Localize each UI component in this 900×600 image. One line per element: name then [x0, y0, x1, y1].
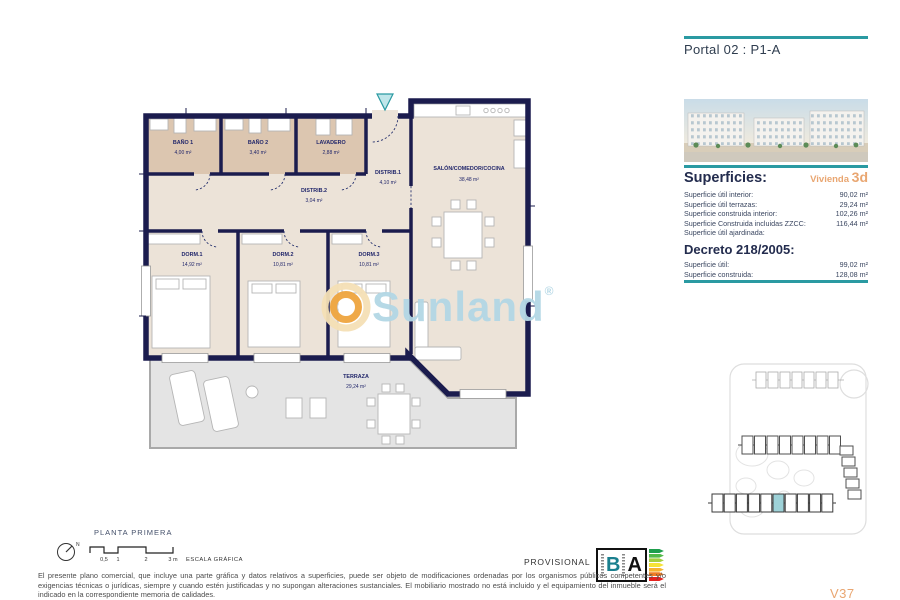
building-render-image — [684, 99, 868, 162]
version-label: V37 — [830, 586, 855, 600]
scale-caption: ESCALA GRÁFICA — [186, 556, 243, 563]
area-banyo1: 4,00 m² — [175, 150, 192, 156]
row-label: Superficie útil terrazas: — [684, 200, 757, 210]
vivienda-code: 3d — [852, 169, 868, 185]
bed-dorm1 — [152, 276, 210, 348]
entrance-arrow-icon — [377, 94, 393, 110]
row-label: Superficie útil interior: — [684, 190, 753, 200]
site-stack-right — [840, 446, 861, 499]
area-dorm3: 10,81 m² — [359, 262, 379, 268]
divider — [684, 280, 868, 283]
north-label: N — [76, 542, 80, 548]
scale-tick: 2 — [144, 557, 147, 563]
row-value: 116,44 m² — [836, 219, 868, 229]
scale-tick: 0,5 — [100, 557, 108, 563]
scale-tick: 1 — [116, 557, 119, 563]
portal-title: Portal 02 : P1-A — [684, 42, 781, 57]
divider — [684, 165, 868, 168]
area-dorm2: 10,81 m² — [273, 262, 293, 268]
superficies-table: Superficie útil interior:90,02 m² Superf… — [684, 190, 868, 238]
provisional-label: PROVISIONAL — [524, 557, 590, 567]
label-dorm2: DORM.2 — [273, 252, 294, 258]
row-value: 102,26 m² — [836, 209, 868, 219]
highlighted-unit — [773, 494, 784, 512]
entry-opening — [372, 110, 398, 121]
row-value: 29,24 m² — [840, 200, 868, 210]
info-sidebar: Portal 02 : P1-A — [684, 0, 868, 600]
decreto-table: Superficie útil:99,02 m² Superficie cons… — [684, 260, 868, 279]
row-label: Superficie útil: — [684, 260, 729, 270]
site-row-upper — [752, 372, 844, 388]
row-label: Superficie construida interior: — [684, 209, 777, 219]
floor-plan: BAÑO 1 4,00 m² BAÑO 2 3,40 m² LAVADERO 2… — [36, 86, 666, 458]
plan-title: PLANTA PRIMERA — [94, 528, 172, 537]
wardrobe — [332, 234, 362, 244]
label-banyo1: BAÑO 1 — [173, 139, 193, 146]
bed-dorm3 — [338, 281, 390, 347]
floor-plan-sheet: BAÑO 1 4,00 m² BAÑO 2 3,40 m² LAVADERO 2… — [0, 0, 900, 600]
row-value: 128,08 m² — [836, 270, 868, 280]
label-salon: SALÓN/COMEDOR/COCINA — [433, 164, 504, 172]
label-terraza: TERRAZA — [343, 374, 369, 380]
scale-ruler — [90, 547, 173, 553]
superficie-row: Superficie útil:99,02 m² — [684, 260, 868, 270]
row-value: 99,02 m² — [840, 260, 868, 270]
area-terraza: 29,24 m² — [346, 384, 366, 390]
superficie-row: Superficie útil ajardinada: — [684, 228, 868, 238]
bed-dorm2 — [248, 281, 300, 347]
legal-disclaimer: El presente plano comercial, que incluye… — [38, 571, 666, 600]
label-lavadero: LAVADERO — [316, 140, 345, 146]
superficie-row: Superficie Construida incluidas ZZCC:116… — [684, 219, 868, 229]
area-dorm1: 14,92 m² — [182, 262, 202, 268]
superficies-heading: Superficies: — [684, 170, 767, 186]
superficie-row: Superficie útil terrazas:29,24 m² — [684, 200, 868, 210]
area-lavadero: 2,88 m² — [323, 150, 340, 156]
row-value: 90,02 m² — [840, 190, 868, 200]
decreto-heading: Decreto 218/2005: — [684, 242, 795, 257]
site-row-middle — [738, 436, 841, 454]
area-distrib1: 4,10 m² — [380, 180, 397, 186]
superficie-row: Superficie construida interior:102,26 m² — [684, 209, 868, 219]
site-row-lower — [708, 494, 836, 512]
superficie-row: Superficie construida:128,08 m² — [684, 270, 868, 280]
vivienda-label: Vivienda 3d — [810, 169, 868, 185]
label-dorm3: DORM.3 — [359, 252, 380, 258]
wardrobe — [242, 234, 282, 244]
row-label: Superficie construida: — [684, 270, 753, 280]
label-distrib2: DISTRIB.2 — [301, 188, 327, 194]
scale-bar: N 0,5 1 2 3 m ESCALA GRÁFICA — [50, 538, 290, 568]
superficies-header: Superficies: Vivienda 3d — [684, 169, 868, 186]
vivienda-prefix: Vivienda — [810, 174, 849, 185]
area-salon: 38,48 m² — [459, 177, 479, 183]
label-dorm1: DORM.1 — [182, 252, 203, 258]
label-distrib1: DISTRIB.1 — [375, 170, 401, 176]
wardrobe — [148, 234, 200, 244]
row-label: Superficie Construida incluidas ZZCC: — [684, 219, 806, 229]
divider — [684, 36, 868, 39]
north-arrow-icon: N — [58, 542, 81, 561]
area-distrib2: 3,04 m² — [306, 198, 323, 204]
site-plan — [694, 358, 874, 550]
label-banyo2: BAÑO 2 — [248, 139, 268, 146]
superficie-row: Superficie útil interior:90,02 m² — [684, 190, 868, 200]
area-banyo2: 3,40 m² — [250, 150, 267, 156]
scale-tick: 3 m — [168, 557, 178, 563]
row-label: Superficie útil ajardinada: — [684, 228, 765, 238]
